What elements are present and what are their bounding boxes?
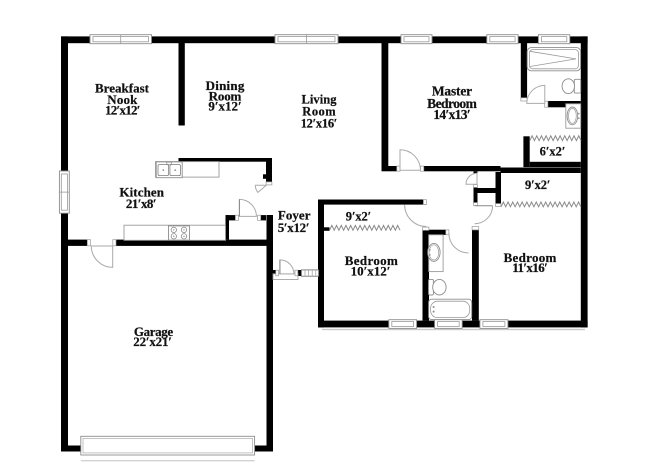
svg-text:9′x2′: 9′x2′: [525, 178, 550, 192]
svg-text:10′x12′: 10′x12′: [351, 264, 391, 279]
svg-text:9′x2′: 9′x2′: [346, 209, 371, 223]
svg-text:6′x2′: 6′x2′: [540, 145, 566, 159]
svg-text:21′x8′: 21′x8′: [126, 196, 157, 211]
svg-text:12′x12′: 12′x12′: [105, 102, 140, 117]
svg-text:11′x16′: 11′x16′: [512, 260, 548, 275]
svg-text:12′x16′: 12′x16′: [301, 116, 338, 130]
svg-text:22′x21′: 22′x21′: [133, 334, 172, 349]
svg-text:14′x13′: 14′x13′: [433, 107, 470, 122]
svg-text:9′x12′: 9′x12′: [208, 99, 241, 114]
svg-text:5′x12′: 5′x12′: [278, 220, 310, 235]
